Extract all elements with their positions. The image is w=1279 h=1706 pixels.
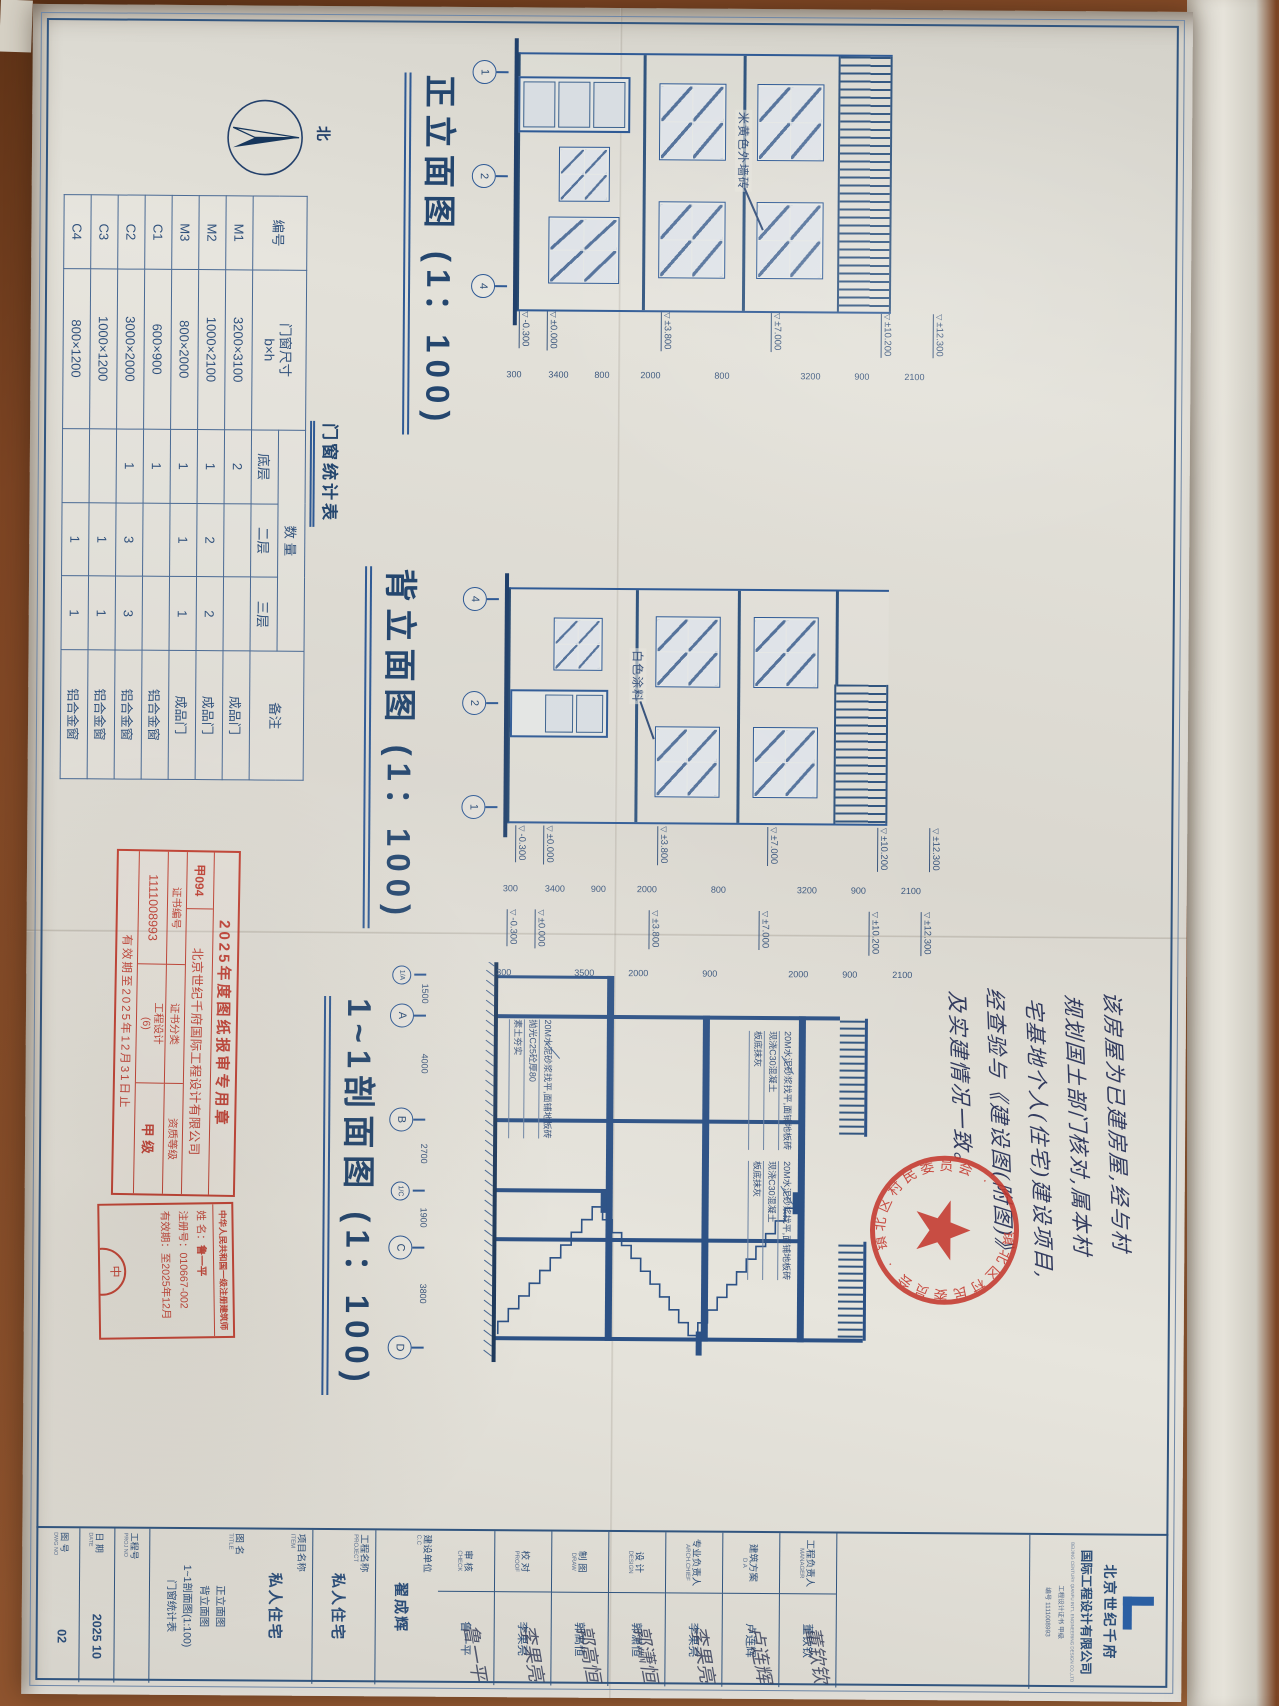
handwritten-signature: 李果亮 bbox=[686, 1624, 722, 1685]
rear-levels-dims: ▽±12.300▽±10.200▽±7.000▽±3.800▽±0.000▽-0… bbox=[499, 825, 947, 900]
axis-bubble-1-C: 1/C bbox=[391, 1181, 410, 1200]
schedule-cell bbox=[62, 428, 90, 502]
level-mark: ▽-0.300 bbox=[515, 825, 527, 862]
col-header-floor: 底层 bbox=[251, 430, 279, 504]
schedule-cell: 1 bbox=[143, 429, 171, 503]
dimension-text: 3200 bbox=[797, 885, 817, 895]
schedule-cell: 3 bbox=[115, 576, 143, 650]
level-mark: ▽±10.200 bbox=[877, 828, 889, 873]
schedule-cell: 3 bbox=[116, 503, 144, 577]
window bbox=[655, 726, 720, 797]
approval-h2: 证书分类 bbox=[165, 965, 185, 1084]
paper-fold-edge bbox=[1187, 0, 1279, 1706]
axis-dimension: 2700 bbox=[419, 1144, 429, 1164]
company-cert-number: 编号 1111008993 bbox=[1044, 1587, 1054, 1637]
handwritten-signature: 卢连辉 bbox=[743, 1624, 779, 1685]
axis-bubble-1-A: 1/A bbox=[392, 965, 411, 984]
level-mark: ▽±3.800 bbox=[648, 910, 660, 949]
drawing-sheet: 北 米黄色外墙砖 ▽±12.300▽±10.200▽±7.000▽±3.800▽… bbox=[21, 4, 1193, 1702]
drawing-title-line: 正立面图 bbox=[211, 1529, 228, 1683]
schedule-row: M21000×2100122成品门 bbox=[195, 196, 226, 780]
handwritten-signature: 李果亮 bbox=[515, 1623, 551, 1684]
schedule-cell: M3 bbox=[172, 195, 200, 269]
schedule-cell: 1 bbox=[89, 502, 117, 576]
schedule-row: M13200×31002成品门 bbox=[222, 196, 253, 780]
schedule-cell: C1 bbox=[145, 195, 173, 269]
axis-dimension: 1500 bbox=[420, 984, 430, 1004]
section-title: 1~1剖面图 (1：100) bbox=[321, 996, 386, 1395]
axis-tick bbox=[412, 1347, 424, 1349]
signature-row: 专业负责人ARCH.CHIEF 李果亮李果亮 bbox=[664, 1532, 722, 1686]
schedule-cell: 铝合金窗 bbox=[114, 650, 142, 779]
level-mark: ▽±12.300 bbox=[920, 912, 932, 957]
bottom-row: 工程号PROJ NO bbox=[113, 1529, 149, 1683]
window bbox=[757, 84, 825, 161]
schedule-cell: 1000×1200 bbox=[90, 269, 118, 429]
dimension-text: 3200 bbox=[800, 371, 820, 381]
axis-tick bbox=[487, 598, 499, 600]
architect-valid-row: 有效期：至2025年12月 bbox=[157, 1205, 177, 1337]
axis-bubble-A: A bbox=[390, 1003, 414, 1027]
window bbox=[553, 618, 602, 671]
drawing-title-line: 门窗统计表 bbox=[162, 1529, 179, 1683]
front-elevation-drawing: 米黄色外墙砖 bbox=[516, 52, 893, 314]
dimension-text: 900 bbox=[702, 969, 717, 979]
dimension-text: 2000 bbox=[640, 370, 660, 380]
level-mark: ▽-0.300 bbox=[519, 311, 531, 348]
photo-of-architectural-drawing: { "compass": {"label": "北"}, "front_elev… bbox=[0, 0, 1279, 1706]
schedule-cell: 800×2000 bbox=[171, 269, 199, 429]
section-axis-bubbles: 1/AAB1/CCD15004000270019003800 bbox=[396, 961, 429, 1361]
col-header-id: 编号 bbox=[253, 196, 308, 270]
col-header-remark: 备注 bbox=[249, 651, 304, 780]
dimension-text: 900 bbox=[591, 884, 606, 894]
window bbox=[753, 727, 818, 798]
rear-material-label: 白色涂料 bbox=[629, 648, 646, 704]
window bbox=[658, 201, 726, 278]
window bbox=[756, 202, 824, 279]
signature-name: 李果亮李果亮 bbox=[494, 1592, 551, 1685]
floor-slab-line bbox=[634, 590, 639, 822]
dimension-text: 900 bbox=[854, 372, 869, 382]
schedule-cell: 1000×2100 bbox=[198, 269, 226, 429]
rear-elevation-drawing: 白色涂料 bbox=[506, 587, 889, 826]
schedule-cell: 铝合金窗 bbox=[60, 650, 88, 779]
axis-tick bbox=[486, 702, 498, 704]
dimension-text: 900 bbox=[842, 970, 857, 980]
title-block: 北京世纪千府 国际工程设计有限公司 BEIJING CENTURY QIANFU… bbox=[35, 1526, 1168, 1690]
schedule-cell: M2 bbox=[199, 196, 227, 270]
signature-label: 专业负责人ARCH.CHIEF bbox=[666, 1532, 722, 1593]
handwritten-signature: 鲁一平 bbox=[458, 1622, 494, 1683]
axis-bubble-4: 4 bbox=[471, 274, 495, 298]
ground-line bbox=[503, 573, 509, 837]
schedule-row: C23000×2000133铝合金窗 bbox=[114, 195, 145, 779]
schedule-row: M3800×2000111成品门 bbox=[168, 195, 199, 779]
roof-line bbox=[835, 592, 839, 685]
level-mark: ▽±0.000 bbox=[534, 909, 546, 948]
schedule-cell: 800×1200 bbox=[63, 268, 91, 428]
level-mark: ▽±7.000 bbox=[758, 911, 770, 950]
north-label: 北 bbox=[313, 126, 334, 141]
company-logo-icon bbox=[1123, 1596, 1154, 1629]
dimension-text: 900 bbox=[851, 886, 866, 896]
drawing-title-line: 1~1剖面图(1:100) bbox=[179, 1529, 196, 1683]
architect-personal-seal: 中 bbox=[97, 1247, 126, 1296]
architect-name-row: 姓 名：鲁一平 bbox=[193, 1204, 214, 1336]
approval-code: 甲094 bbox=[187, 852, 214, 909]
axis-bubble-1: 1 bbox=[461, 795, 485, 819]
signature-label: 工程负责人MANAGER bbox=[780, 1533, 836, 1594]
info-row: 工程名称PROJECT私人住宅 bbox=[311, 1530, 375, 1684]
table-corner-paper bbox=[0, 0, 33, 53]
signature-name: 郭高恒郭高恒 bbox=[551, 1593, 608, 1686]
axis-bubble-4: 4 bbox=[463, 587, 487, 611]
schedule-cell: 2 bbox=[196, 577, 224, 651]
handwritten-signature: 郭潇恒 bbox=[629, 1623, 665, 1684]
window bbox=[753, 617, 818, 688]
schedule-cell bbox=[143, 503, 171, 577]
schedule-cell: 2 bbox=[224, 430, 252, 504]
window bbox=[655, 616, 720, 687]
signature-name: 董钦钦董钦钦 bbox=[779, 1594, 836, 1687]
axis-tick bbox=[496, 175, 508, 177]
floor-slab-line bbox=[736, 591, 741, 823]
dimension-text: 2100 bbox=[892, 970, 912, 980]
axis-tick bbox=[495, 285, 507, 287]
dimension-text: 800 bbox=[594, 370, 609, 380]
level-mark: ▽±3.800 bbox=[657, 826, 669, 865]
signature-label: 建筑方案D A bbox=[723, 1533, 779, 1594]
axis-tick bbox=[413, 1119, 425, 1121]
schedule-row: C31000×120011铝合金窗 bbox=[87, 195, 118, 779]
level-mark: ▽±0.000 bbox=[543, 825, 555, 864]
signature-name: 鲁一平鲁一平 bbox=[437, 1592, 494, 1685]
company-cert-grade: 工程设计证书 甲级 bbox=[1057, 1585, 1067, 1639]
schedule-cell: 成品门 bbox=[222, 651, 250, 780]
rear-axis-bubbles: 421 bbox=[471, 587, 499, 819]
schedule-cell: 1 bbox=[62, 502, 90, 576]
signature-label: 设 计DESIGN bbox=[609, 1532, 665, 1593]
axis-dimension: 3800 bbox=[418, 1284, 428, 1304]
signature-name: 李果亮李果亮 bbox=[665, 1593, 722, 1686]
dimension-text: 300 bbox=[506, 369, 521, 379]
ground-line bbox=[513, 38, 519, 325]
schedule-cell bbox=[223, 577, 251, 651]
level-mark: ▽±3.800 bbox=[661, 312, 673, 351]
window bbox=[548, 217, 619, 284]
dimension-text: 2000 bbox=[628, 968, 648, 978]
level-mark: ▽±10.200 bbox=[881, 314, 893, 359]
schedule-cell: 铝合金窗 bbox=[87, 650, 115, 779]
dimension-text: 2100 bbox=[901, 886, 921, 896]
dimension-text: 2000 bbox=[637, 884, 657, 894]
axis-bubble-1: 1 bbox=[472, 60, 496, 84]
schedule-cell: 铝合金窗 bbox=[141, 650, 169, 779]
schedule-cell: 1 bbox=[170, 429, 198, 503]
door-window-schedule: 编号 门窗尺寸 b×h 数 量 备注 底层二层三层 M13200×31002成品… bbox=[60, 194, 308, 781]
axis-bubble-D: D bbox=[388, 1335, 412, 1359]
schedule-cell: 3200×3100 bbox=[225, 270, 253, 430]
schedule-cell: 成品门 bbox=[195, 651, 223, 780]
drawing-title-cell: 图 名 TITLE 正立面图背立面图1~1剖面图(1:100)门窗统计表 bbox=[148, 1529, 250, 1684]
north-needle-dark bbox=[233, 137, 299, 147]
section-levels-dims: ▽±12.300▽±10.200▽±7.000▽±3.800▽±0.000▽-0… bbox=[486, 909, 946, 972]
approval-h1: 证书编号 bbox=[167, 852, 187, 965]
dimension-text: 300 bbox=[496, 967, 511, 977]
design-firm-approval-stamp: 2025年度图纸报审专用章 甲094 北京世纪千府国际工程设计有限公司 证书编号… bbox=[111, 849, 241, 1197]
front-levels-dims: ▽±12.300▽±10.200▽±7.000▽±3.800▽±0.000▽-0… bbox=[502, 311, 950, 386]
schedule-cell: 3000×2000 bbox=[117, 269, 145, 429]
north-compass bbox=[225, 97, 306, 178]
rear-elevation-title: 背立面图 (1：100) bbox=[363, 566, 428, 928]
schedule-cell: 成品门 bbox=[168, 651, 196, 780]
level-mark: ▽±7.000 bbox=[771, 313, 783, 352]
level-mark: ▽±7.000 bbox=[767, 827, 779, 866]
dimension-text: 800 bbox=[711, 885, 726, 895]
approval-cert-class: 工程设计(6) bbox=[136, 964, 166, 1083]
dimension-text: 800 bbox=[714, 371, 729, 381]
schedule-cell bbox=[142, 577, 170, 651]
axis-tick bbox=[413, 1190, 425, 1192]
axis-dimension: 4000 bbox=[420, 1054, 430, 1074]
level-mark: ▽±0.000 bbox=[547, 311, 559, 350]
axis-bubble-2: 2 bbox=[472, 164, 496, 188]
signature-name: 郭潇恒郭潇恒 bbox=[608, 1593, 665, 1686]
axis-dimension: 1900 bbox=[418, 1208, 428, 1228]
schedule-cell: 1 bbox=[197, 429, 225, 503]
schedule-row: C1600×9001铝合金窗 bbox=[141, 195, 172, 779]
axis-bubble-C: C bbox=[388, 1235, 412, 1259]
schedule-cell bbox=[89, 429, 117, 503]
drawing-title-line: 背立面图 bbox=[195, 1529, 212, 1683]
section-ground-note: 20M水泥砂浆找平,面铺地板砖抛光C25砼厚80素土夯实 bbox=[508, 1019, 554, 1138]
schedule-cell: 600×900 bbox=[144, 269, 172, 429]
schedule-cell: 1 bbox=[169, 577, 197, 651]
handwritten-signature: 董钦钦 bbox=[800, 1625, 836, 1686]
entry-door bbox=[518, 76, 630, 133]
schedule-cell: M1 bbox=[226, 196, 254, 270]
schedule-row: C4800×120011铝合金窗 bbox=[60, 195, 91, 779]
approval-cert-no: 1111008993 bbox=[138, 851, 168, 964]
col-header-size: 门窗尺寸 b×h bbox=[252, 270, 307, 430]
bottom-row: 日 期DATE2025 10 bbox=[78, 1528, 114, 1682]
title-block-company: 北京世纪千府 国际工程设计有限公司 BEIJING CENTURY QIANFU… bbox=[1028, 1535, 1168, 1690]
dimension-text: 3500 bbox=[574, 968, 594, 978]
dimension-text: 3400 bbox=[548, 370, 568, 380]
schedule-cell: 1 bbox=[116, 429, 144, 503]
parapet-hatch bbox=[837, 57, 893, 312]
signature-label: 校 对PROOF bbox=[495, 1531, 551, 1592]
axis-tick bbox=[497, 71, 509, 73]
bottom-row: 图 号DWG NO02 bbox=[44, 1528, 79, 1682]
col-header-floor: 二层 bbox=[251, 504, 279, 578]
axis-bubble-B: B bbox=[389, 1107, 413, 1131]
signature-row: 建筑方案D A 卢连辉卢连辉 bbox=[721, 1533, 779, 1687]
approval-company: 北京世纪千府国际工程设计有限公司 bbox=[182, 909, 213, 1194]
schedule-cell: 1 bbox=[170, 503, 198, 577]
signature-row: 校 对PROOF 李果亮李果亮 bbox=[493, 1531, 551, 1685]
company-name-line1: 北京世纪千府 bbox=[1099, 1564, 1120, 1660]
schedule-cell: 1 bbox=[61, 576, 89, 650]
level-mark: ▽±10.200 bbox=[868, 912, 880, 957]
seal-star bbox=[916, 1200, 970, 1260]
parapet-hatch bbox=[833, 684, 888, 824]
axis-tick bbox=[414, 974, 426, 976]
schedule-cell: 1 bbox=[88, 576, 116, 650]
title-block-empty-cell bbox=[835, 1534, 1029, 1689]
window bbox=[659, 83, 727, 160]
axis-tick bbox=[485, 806, 497, 808]
level-mark: ▽-0.300 bbox=[506, 909, 518, 946]
level-mark: ▽±12.300 bbox=[933, 314, 945, 359]
registered-architect-stamp: 中华人民共和国一级注册建筑师 姓 名：鲁一平 注册号：010667-002 有效… bbox=[97, 1202, 235, 1340]
front-axis-bubbles: 124 bbox=[481, 52, 509, 307]
info-row: 项目名称ITEM私人住宅 bbox=[249, 1529, 312, 1683]
signature-row: 设 计DESIGN 郭潇恒郭潇恒 bbox=[607, 1532, 665, 1686]
signature-name: 卢连辉卢连辉 bbox=[722, 1594, 779, 1687]
handwritten-signature: 郭高恒 bbox=[572, 1623, 608, 1684]
company-name-english: BEIJING CENTURY QIANFU INT'L ENGINEERING… bbox=[1069, 1542, 1075, 1682]
info-row: 建设单位C.C翟成辉 bbox=[374, 1530, 438, 1684]
signature-label: 审 核CHECK bbox=[438, 1531, 494, 1592]
dimension-text: 2100 bbox=[904, 372, 924, 382]
axis-tick bbox=[414, 1015, 426, 1017]
window bbox=[559, 147, 610, 202]
approval-h3: 资质等级 bbox=[163, 1084, 183, 1194]
section-floor-note: 20M水泥砂浆找平,面铺地板砖现浇C30混凝土板底抹灰 bbox=[748, 1031, 794, 1150]
schedule-cell: C3 bbox=[91, 195, 119, 269]
schedule-cell: C2 bbox=[118, 195, 146, 269]
rear-door bbox=[510, 689, 608, 738]
architect-reg-row: 注册号：010667-002 bbox=[175, 1204, 195, 1336]
axis-bubble-2: 2 bbox=[462, 691, 486, 715]
signature-label: 制 图DRAW bbox=[552, 1532, 608, 1593]
company-name-line2: 国际工程设计有限公司 bbox=[1077, 1550, 1097, 1675]
architect-stamp-title: 中华人民共和国一级注册建筑师 bbox=[212, 1204, 233, 1336]
signature-row: 制 图DRAW 郭高恒郭高恒 bbox=[550, 1532, 608, 1686]
village-committee-seal: 镇北区村民委员会 · 镇北区村民委员会 · bbox=[857, 1148, 1027, 1313]
section-floor-note: 20M水泥砂浆找平,面铺地板砖现浇C30混凝土板底抹灰 bbox=[747, 1161, 793, 1280]
col-header-qty: 数 量 bbox=[277, 430, 306, 652]
leader-line bbox=[640, 701, 655, 739]
col-header-floor: 三层 bbox=[250, 577, 278, 651]
signature-row: 审 核CHECK 鲁一平鲁一平 bbox=[437, 1531, 494, 1685]
signature-row: 工程负责人MANAGER 董钦钦董钦钦 bbox=[778, 1533, 836, 1687]
floor-slab-line bbox=[642, 55, 647, 310]
approval-grade: 甲 级 bbox=[134, 1083, 164, 1193]
axis-tick bbox=[412, 1247, 424, 1249]
front-elevation-title: 正立面图 (1：100) bbox=[402, 72, 467, 434]
schedule-title: 门窗统计表 bbox=[309, 421, 344, 527]
level-mark: ▽±12.300 bbox=[929, 828, 941, 873]
section-drawing bbox=[434, 962, 887, 1365]
dimension-text: 2000 bbox=[788, 969, 808, 979]
front-material-label: 米黄色外墙砖 bbox=[735, 110, 753, 192]
schedule-cell bbox=[224, 503, 252, 577]
approval-stamp-line1: 2025年度图纸报审专用章 bbox=[209, 853, 239, 1195]
schedule-cell: C4 bbox=[64, 195, 92, 269]
schedule-cell: 2 bbox=[197, 503, 225, 577]
dimension-text: 3400 bbox=[545, 883, 565, 893]
dimension-text: 300 bbox=[503, 883, 518, 893]
